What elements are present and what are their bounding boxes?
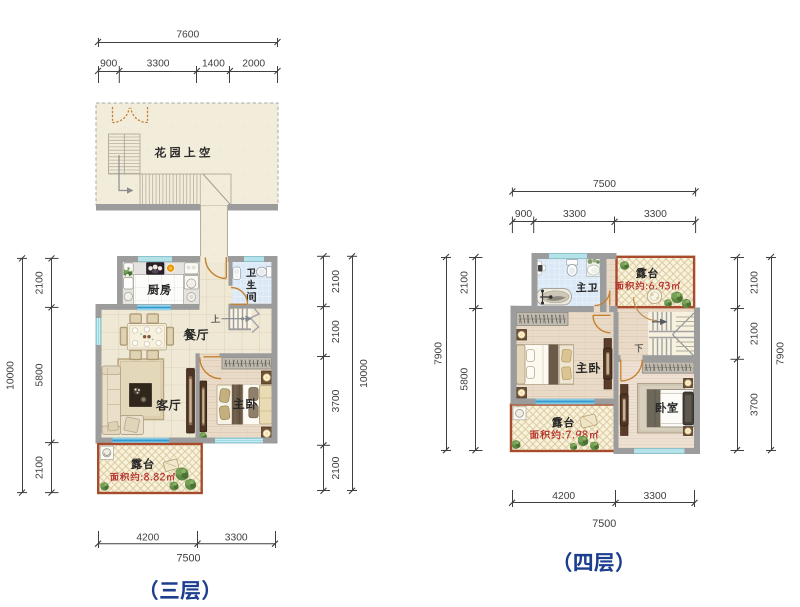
svg-text:2100: 2100 — [331, 270, 342, 293]
svg-text:7500: 7500 — [592, 518, 616, 530]
svg-text:2100: 2100 — [35, 271, 46, 294]
svg-text:3300: 3300 — [225, 533, 248, 544]
svg-text:2100: 2100 — [35, 456, 46, 479]
svg-text:3300: 3300 — [644, 209, 667, 220]
svg-text:1400: 1400 — [202, 59, 225, 70]
svg-text:3300: 3300 — [563, 209, 586, 220]
svg-text:7500: 7500 — [593, 179, 616, 190]
svg-text:3700: 3700 — [750, 393, 761, 416]
svg-text:7900: 7900 — [776, 342, 787, 365]
svg-text:4200: 4200 — [552, 491, 575, 502]
svg-text:3700: 3700 — [331, 389, 342, 412]
svg-text:4200: 4200 — [136, 533, 159, 544]
svg-text:3300: 3300 — [147, 59, 170, 70]
svg-text:900: 900 — [100, 59, 117, 70]
svg-text:2100: 2100 — [750, 322, 761, 345]
svg-text:7900: 7900 — [434, 342, 445, 365]
svg-text:2100: 2100 — [331, 320, 342, 343]
svg-text:2100: 2100 — [331, 456, 342, 479]
svg-text:2100: 2100 — [460, 271, 471, 294]
svg-text:900: 900 — [515, 209, 532, 220]
svg-text:5800: 5800 — [460, 367, 471, 390]
svg-text:7500: 7500 — [176, 553, 200, 565]
svg-text:10000: 10000 — [359, 359, 370, 388]
svg-text:3300: 3300 — [644, 491, 667, 502]
svg-text:5800: 5800 — [35, 363, 46, 386]
svg-text:2100: 2100 — [750, 271, 761, 294]
svg-text:2000: 2000 — [242, 59, 265, 70]
svg-text:10000: 10000 — [6, 361, 17, 390]
svg-text:7600: 7600 — [176, 30, 199, 41]
